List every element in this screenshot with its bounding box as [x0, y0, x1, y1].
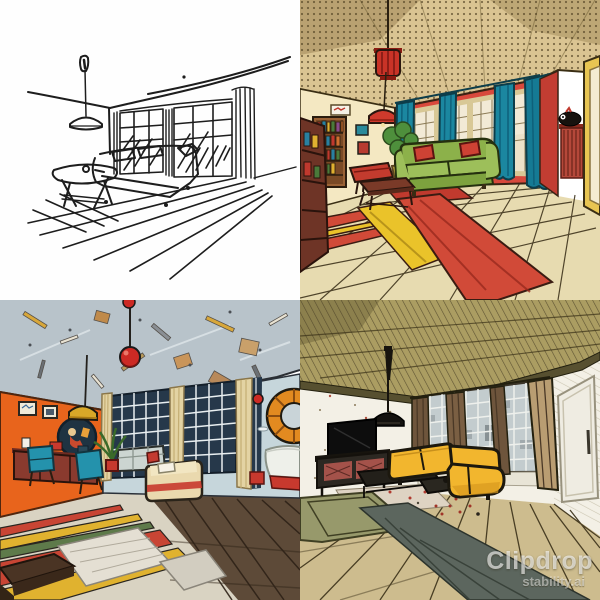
cream-sofa	[146, 461, 202, 501]
white-door	[558, 376, 598, 502]
red-wall-knob	[253, 394, 263, 404]
door-handle	[588, 430, 589, 454]
radiator	[559, 108, 585, 178]
foreground-shelf-edge	[300, 118, 328, 272]
picture-frame	[19, 402, 36, 415]
generated-image-grid: Clipdrop stability.ai	[0, 0, 600, 600]
panel-ink-sketch	[0, 0, 300, 300]
panel-pop-art	[0, 300, 300, 600]
red-pillow	[414, 145, 434, 161]
picture-frame-teal	[356, 125, 368, 135]
picture-frame-red	[358, 142, 369, 154]
panel-hatched-comic	[300, 300, 600, 600]
panel-retro-comic	[300, 0, 600, 300]
red-pillow	[460, 141, 480, 157]
